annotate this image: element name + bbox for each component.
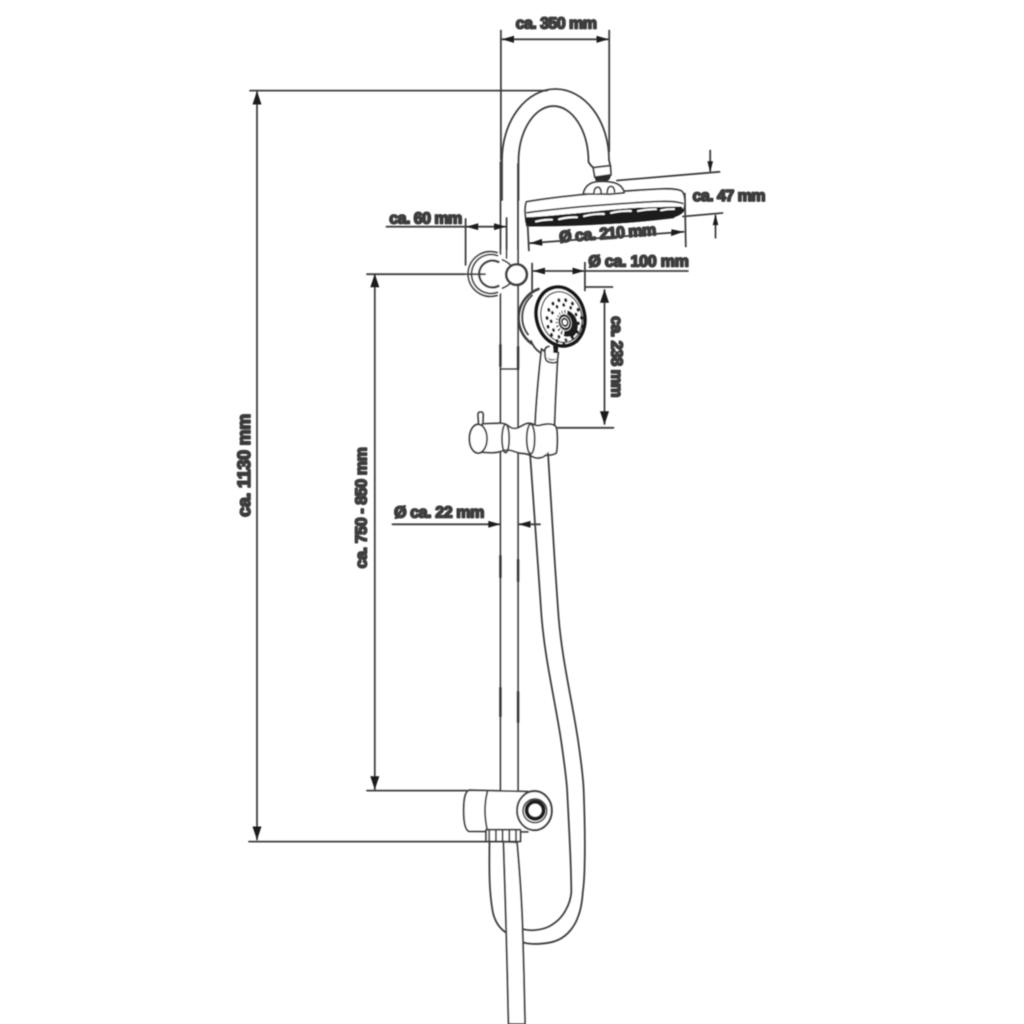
svg-text:ca. 750 - 850 mm: ca. 750 - 850 mm xyxy=(354,447,371,568)
svg-text:ca. 60 mm: ca. 60 mm xyxy=(389,211,462,228)
svg-text:ca. 350 mm: ca. 350 mm xyxy=(516,16,597,33)
svg-text:Ø ca. 22 mm: Ø ca. 22 mm xyxy=(394,505,484,522)
svg-text:ca. 47 mm: ca. 47 mm xyxy=(693,188,766,205)
svg-text:Ø ca. 100 mm: Ø ca. 100 mm xyxy=(588,253,688,270)
svg-text:ca. 1130 mm: ca. 1130 mm xyxy=(234,414,254,517)
svg-text:ca. 238 mm: ca. 238 mm xyxy=(608,316,625,397)
